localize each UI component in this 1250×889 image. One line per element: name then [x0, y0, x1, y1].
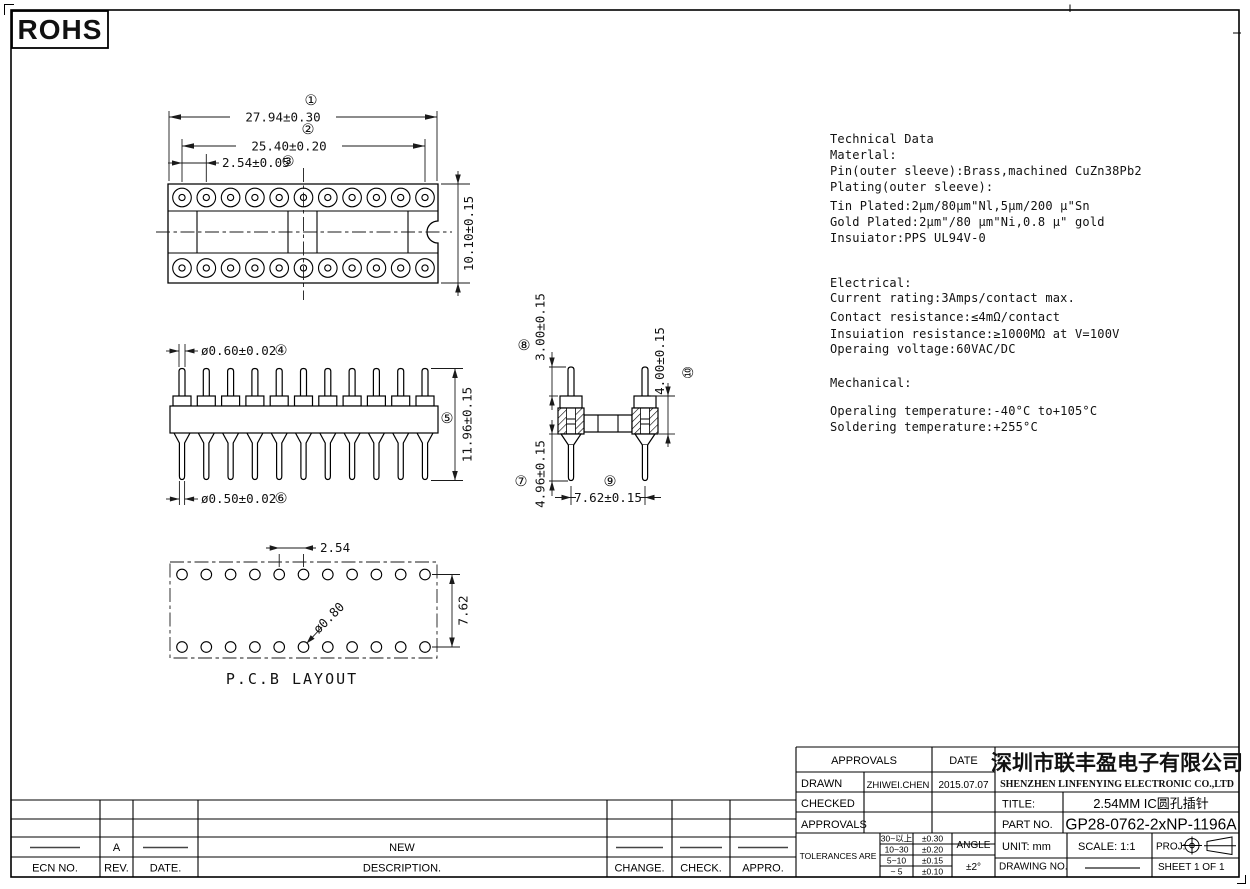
tech-line: Mechanical:	[830, 376, 912, 390]
date-header: DATE	[949, 755, 978, 767]
approvals-header: APPROVALS	[831, 755, 897, 767]
title-value: 2.54MM IC圆孔插针	[1093, 796, 1209, 811]
first-angle-projection-icon	[1182, 837, 1236, 855]
sheet-label: SHEET 1 OF 1	[1158, 862, 1225, 873]
pin-shoulder	[343, 396, 361, 406]
dim-body-height: 10.10±0.15	[441, 171, 476, 296]
socket-hole-icon	[197, 188, 216, 207]
pin-tail	[393, 433, 409, 480]
drawn-label: DRAWN	[801, 778, 842, 790]
pcb-hole-icon	[177, 569, 188, 580]
tol-range: 10~30	[885, 845, 909, 855]
pin-shoulder	[222, 396, 240, 406]
drawing-sheet: ROHS 27.94±0.30 ①	[0, 0, 1250, 889]
dim-pcb-hole: ø0.80	[307, 599, 348, 643]
tol-value: ±0.15	[922, 856, 943, 866]
pin-top	[373, 369, 379, 397]
drawn-date: 2015.07.07	[938, 780, 988, 791]
pin-top	[301, 369, 307, 397]
title-block: APPROVALS DATE DRAWN ZHIWEI.CHEN 2015.07…	[796, 747, 1243, 877]
pin-top	[252, 369, 258, 397]
rohs-stamp: ROHS	[12, 11, 108, 48]
pcb-hole-icon	[274, 569, 285, 580]
socket-hole-icon	[173, 259, 192, 278]
dim-text: ø0.50±0.02	[201, 491, 276, 506]
pin-tail	[320, 433, 336, 480]
unit-label: UNIT: mm	[1002, 841, 1051, 853]
pin-tail	[198, 433, 214, 480]
socket-hole-icon	[246, 259, 265, 278]
socket-hole-bore-icon	[179, 194, 185, 200]
dim-text: 2.54	[320, 540, 350, 555]
drawn-value: ZHIWEI.CHEN	[867, 780, 930, 791]
pin-top	[325, 369, 331, 397]
section-pin-top	[568, 367, 574, 396]
balloon-4: ④	[275, 343, 288, 359]
dim-text: 25.40±0.20	[251, 139, 326, 154]
socket-hole-bore-icon	[203, 265, 209, 271]
change-header: CHANGE.	[614, 863, 664, 875]
tech-line: Gold Plated:2μm"/80 μm"Ni,0.8 μ" gold	[830, 215, 1105, 229]
pcb-hole-icon	[420, 569, 431, 580]
pcb-hole-icon	[201, 642, 212, 653]
pcb-caption: P.C.B LAYOUT	[226, 670, 358, 688]
pcb-hole-icon	[371, 569, 382, 580]
balloon-3: ③	[282, 154, 295, 170]
revision-desc-value: NEW	[389, 842, 415, 854]
socket-hole-bore-icon	[373, 265, 379, 271]
socket-hole-bore-icon	[228, 194, 234, 200]
dim-text: 2.54±0.05	[222, 155, 290, 170]
ecn-no-header: ECN NO.	[32, 863, 78, 875]
dim-text: 10.10±0.15	[461, 196, 476, 271]
socket-hole-icon	[391, 188, 410, 207]
dim-top-pin-dia: ø0.60±0.02 ④	[166, 343, 288, 367]
part-no-value: GP28-0762-2xNP-1196A	[1065, 817, 1237, 834]
dim-text: 4.96±0.15	[533, 440, 548, 508]
socket-hole-bore-icon	[349, 265, 355, 271]
socket-hole-bore-icon	[398, 265, 404, 271]
dim-text: 11.96±0.15	[460, 387, 475, 462]
section-pin-shoulder	[634, 396, 656, 408]
rev-header: REV.	[104, 863, 129, 875]
rohs-label: ROHS	[18, 14, 103, 45]
socket-hole-bore-icon	[276, 194, 282, 200]
section-sleeve-hatch	[558, 408, 567, 434]
company-name-cn: 深圳市联丰盈电子有限公司	[991, 751, 1243, 775]
pcb-hole-icon	[201, 569, 212, 580]
section-pin-tail	[642, 445, 647, 481]
dim-pitch: 2.54±0.05 ③	[168, 154, 295, 182]
socket-hole-icon	[270, 259, 289, 278]
tech-line: Pin(outer sleeve):Brass,machined CuZn38P…	[830, 164, 1142, 178]
pin-tail	[296, 433, 312, 480]
pcb-hole-icon	[250, 642, 261, 653]
socket-hole-bore-icon	[252, 265, 258, 271]
tol-range: 30~以上	[881, 834, 913, 844]
proj-label: PROJ:	[1156, 842, 1185, 853]
socket-hole-bore-icon	[349, 194, 355, 200]
pin-tail	[344, 433, 360, 480]
dim-text: ø0.60±0.02	[201, 343, 276, 358]
section-pin-tail	[568, 445, 573, 481]
tolerances-label: TOLERANCES ARE	[800, 851, 877, 861]
socket-hole-bore-icon	[422, 265, 428, 271]
side-view: ø0.60±0.02 ④ ø0.50±0.02 ⑥ 11.96±0.15 ⑤	[166, 343, 475, 507]
dim-top-pin-length: 3.00±0.15 ⑧	[518, 293, 567, 410]
pin-top	[179, 369, 185, 397]
balloon-6: ⑥	[275, 491, 288, 507]
socket-hole-bore-icon	[179, 265, 185, 271]
pcb-hole-icon	[420, 642, 431, 653]
pin-top	[228, 369, 234, 397]
socket-hole-icon	[416, 188, 435, 207]
balloon-10: ⑩	[681, 366, 697, 379]
socket-hole-bore-icon	[276, 265, 282, 271]
balloon-9: ⑨	[604, 474, 617, 490]
socket-hole-icon	[343, 188, 362, 207]
section-pin-shoulder	[560, 396, 582, 408]
pcb-hole-icon	[347, 569, 358, 580]
section-sleeve-hatch	[632, 408, 641, 434]
socket-hole-icon	[391, 259, 410, 278]
tech-line: Contact resistance:≤4mΩ/contact	[830, 310, 1060, 324]
pin-top	[349, 369, 355, 397]
angle-label: ANGLE	[957, 840, 991, 851]
pcb-holes	[177, 569, 431, 652]
tech-line: Technical Data	[830, 132, 934, 146]
pin-tail	[417, 433, 433, 480]
socket-hole-bore-icon	[373, 194, 379, 200]
checked-label: CHECKED	[801, 798, 855, 810]
section-pin-cone	[635, 434, 655, 445]
tech-line: Tin Plated:2μm/80μm"Nl,5μm/200 μ"Sn	[830, 199, 1090, 213]
socket-hole-icon	[416, 259, 435, 278]
pcb-hole-icon	[225, 569, 236, 580]
pcb-hole-icon	[177, 642, 188, 653]
pcb-hole-icon	[323, 569, 334, 580]
tech-line: Materlal:	[830, 148, 897, 162]
pin-shoulder	[270, 396, 288, 406]
pin-tail	[271, 433, 287, 480]
tol-range: ~ 5	[890, 867, 902, 877]
socket-hole-icon	[173, 188, 192, 207]
socket-hole-icon	[246, 188, 265, 207]
tol-value: ±0.30	[922, 834, 943, 844]
section-sleeve-hatch	[650, 408, 659, 434]
scale-label: SCALE: 1:1	[1078, 841, 1135, 853]
pcb-hole-icon	[395, 569, 406, 580]
pin-shoulder	[197, 396, 215, 406]
pin-top	[398, 369, 404, 397]
tol-value: ±0.20	[922, 845, 943, 855]
pin-tail	[174, 433, 190, 480]
section-sleeve-hatch	[576, 408, 585, 434]
pcb-hole-icon	[250, 569, 261, 580]
socket-hole-bore-icon	[228, 265, 234, 271]
tech-line: Plating(outer sleeve):	[830, 180, 993, 194]
pcb-hole-icon	[347, 642, 358, 653]
socket-hole-icon	[270, 188, 289, 207]
socket-hole-bore-icon	[398, 194, 404, 200]
balloon-5: ⑤	[441, 411, 454, 427]
pin-shoulder	[295, 396, 313, 406]
pcb-hole-icon	[371, 642, 382, 653]
socket-hole-icon	[221, 259, 240, 278]
company-name-en: SHENZHEN LINFENYING ELECTRONIC CO.,LTD	[1000, 779, 1234, 790]
socket-hole-bore-icon	[325, 265, 331, 271]
tech-line: Soldering temperature:+255°C	[830, 420, 1038, 434]
pin-shoulder	[367, 396, 385, 406]
socket-hole-icon	[221, 188, 240, 207]
socket-hole-icon	[319, 188, 338, 207]
pcb-layout: 2.54 ø0.80 7.62 P.C.B LAYOUT	[170, 540, 471, 688]
pin-top	[276, 369, 282, 397]
socket-hole-icon	[197, 259, 216, 278]
pin-tail	[247, 433, 263, 480]
angle-value: ±2°	[966, 862, 981, 873]
pcb-hole-icon	[225, 642, 236, 653]
dim-pcb-row-span: 7.62	[432, 575, 471, 648]
revision-rev-value: A	[113, 842, 121, 854]
tol-value: ±0.10	[922, 867, 943, 877]
pin-top	[422, 369, 428, 397]
pin-tail	[223, 433, 239, 480]
balloon-8: ⑧	[518, 338, 531, 354]
section-pin-top	[642, 367, 648, 396]
check-header: CHECK.	[680, 863, 722, 875]
technical-data: Technical Data Materlal: Pin(outer sleev…	[830, 132, 1142, 434]
pin-shoulder	[173, 396, 191, 406]
pcb-hole-icon	[323, 642, 334, 653]
socket-hole-bore-icon	[252, 194, 258, 200]
socket-hole-bore-icon	[422, 194, 428, 200]
pcb-hole-icon	[395, 642, 406, 653]
top-view: 27.94±0.30 ① 25.40±0.20 ② 2.54±0.05 ③	[156, 93, 476, 300]
dim-pcb-pitch: 2.54	[266, 540, 350, 567]
pin-tail	[368, 433, 384, 480]
revision-table: A NEW ECN NO. REV. DATE. DESCRIPTION. CH…	[11, 800, 796, 877]
pin-shoulder	[319, 396, 337, 406]
socket-hole-icon	[343, 259, 362, 278]
balloon-1: ①	[305, 93, 318, 109]
drawing-canvas: ROHS 27.94±0.30 ①	[0, 0, 1250, 889]
socket-hole-icon	[367, 259, 386, 278]
tech-line: Operaling temperature:-40°C to+105°C	[830, 404, 1097, 418]
appro-header: APPRO.	[742, 863, 784, 875]
tech-line: Current rating:3Amps/contact max.	[830, 291, 1075, 305]
pin-shoulder	[246, 396, 264, 406]
socket-hole-icon	[319, 259, 338, 278]
dim-text: 4.00±0.15	[652, 327, 667, 395]
balloon-2: ②	[302, 122, 315, 138]
dim-text: 7.62±0.15	[574, 490, 642, 505]
description-header: DESCRIPTION.	[363, 863, 441, 875]
tech-line: Insuiation resistance:≥1000MΩ at V=100V	[830, 327, 1120, 341]
balloon-7: ⑦	[515, 474, 528, 490]
dim-text: 7.62	[456, 595, 471, 625]
dim-text: ø0.80	[310, 599, 347, 636]
part-no-label: PART NO.	[1002, 819, 1053, 831]
socket-hole-bore-icon	[203, 194, 209, 200]
title-label: TITLE:	[1002, 799, 1035, 811]
date-header: DATE.	[150, 863, 182, 875]
dim-bottom-pin-dia: ø0.50±0.02 ⑥	[166, 481, 288, 507]
pcb-hole-icon	[298, 569, 309, 580]
pin-top	[203, 369, 209, 397]
pin-shoulder	[416, 396, 434, 406]
approvals-label: APPROVALS	[801, 819, 867, 831]
section-view: 3.00±0.15 ⑧ 4.96±0.15 ⑦ 4.00±0.15 ⑩	[515, 293, 698, 508]
tech-line: Insuiator:PPS UL94V-0	[830, 231, 986, 245]
tech-line: Operaing voltage:60VAC/DC	[830, 342, 1016, 356]
tol-range: 5~10	[887, 856, 906, 866]
dim-text: 3.00±0.15	[533, 293, 548, 361]
pcb-hole-icon	[274, 642, 285, 653]
socket-hole-bore-icon	[325, 194, 331, 200]
tech-line: Electrical:	[830, 276, 912, 290]
socket-hole-icon	[367, 188, 386, 207]
drawing-no-label: DRAWING NO.	[999, 862, 1068, 873]
section-pin-cone	[561, 434, 581, 445]
pin-shoulder	[392, 396, 410, 406]
